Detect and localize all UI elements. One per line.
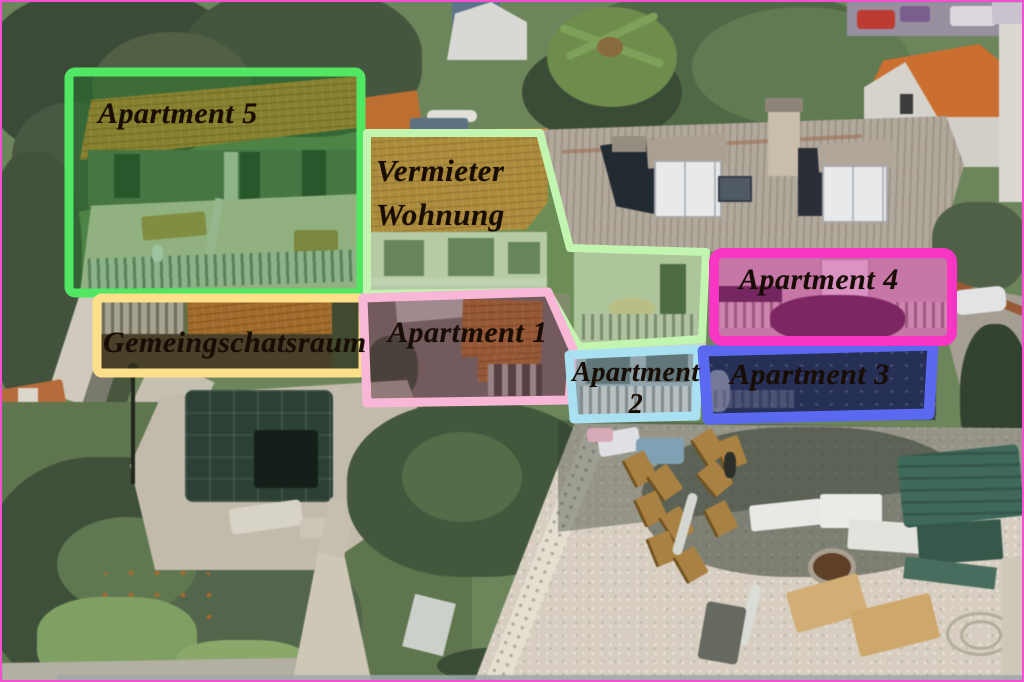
label-apartment-2-line2: 2 — [572, 389, 700, 421]
vermieter-sill — [367, 278, 547, 286]
apartment1-arches — [488, 364, 542, 396]
lamp-post-head — [128, 363, 138, 372]
balcony-door — [660, 264, 686, 314]
purple-car — [900, 6, 930, 22]
label-vermieter-line1: Vermieter — [376, 149, 505, 193]
label-apartment-4: Apartment 4 — [739, 263, 899, 297]
label-apartment-1-text: Apartment 1 — [388, 316, 548, 350]
label-apartment-3-text: Apartment 3 — [730, 358, 890, 392]
roof-vent — [612, 136, 646, 152]
pergola-opening — [254, 430, 318, 488]
vermieter-window-1 — [384, 240, 424, 276]
apartment4-tree — [770, 295, 905, 343]
label-apartment-3: Apartment 3 — [730, 358, 890, 392]
big-tree-highlight — [402, 432, 522, 522]
apartment5-door-2 — [240, 152, 260, 200]
balcony-balustrade — [582, 314, 704, 340]
label-vermieter-line2: Wohnung — [376, 193, 505, 237]
person-on-terrace — [152, 245, 163, 262]
dormer1-window — [654, 160, 722, 218]
dormer2-window — [822, 165, 888, 223]
green-picnic-table — [917, 519, 1004, 565]
label-apartment-5-text: Apartment 5 — [98, 97, 258, 131]
apartment5-door-3 — [302, 150, 326, 200]
apartment5-column — [224, 152, 238, 204]
label-apartment-5: Apartment 5 — [98, 97, 258, 131]
label-apartment-2: Apartment 2 — [572, 357, 700, 421]
apartment5-door-1 — [114, 154, 140, 198]
green-canopy — [897, 444, 1024, 528]
label-gemeinschaftsraum: Gemeingschatsraum — [103, 326, 367, 360]
white-van — [950, 6, 996, 26]
vermieter-window-3 — [508, 242, 540, 274]
red-car — [857, 10, 895, 29]
standing-person — [724, 452, 736, 478]
corner-building-top-right — [992, 2, 1024, 24]
label-vermieter-wohnung: Vermieter Wohnung — [376, 149, 505, 237]
bottom-edge-strip — [57, 675, 1024, 682]
chimney — [768, 102, 800, 176]
white-building-right-edge — [999, 24, 1024, 202]
palm-trunk-center — [597, 37, 623, 57]
label-gemeinschaftsraum-text: Gemeingschatsraum — [103, 326, 367, 360]
label-apartment-1: Apartment 1 — [388, 316, 548, 350]
wall-right-bottom — [1002, 558, 1024, 682]
textile-pile-3 — [587, 428, 613, 442]
wire-ring-2 — [960, 620, 1002, 650]
apartment3-balustrade-hint — [714, 390, 794, 408]
label-apartment-4-text: Apartment 4 — [739, 263, 899, 297]
chimney-cap — [765, 98, 803, 112]
vermieter-window-2 — [448, 238, 494, 276]
window-top-right-house — [900, 94, 913, 114]
skylight — [718, 176, 752, 202]
label-apartment-2-line1: Apartment — [572, 357, 700, 389]
annotated-aerial-photo: Apartment 5 Vermieter Wohnung Gemeingsch… — [0, 0, 1024, 682]
lamp-post-1 — [131, 368, 135, 484]
